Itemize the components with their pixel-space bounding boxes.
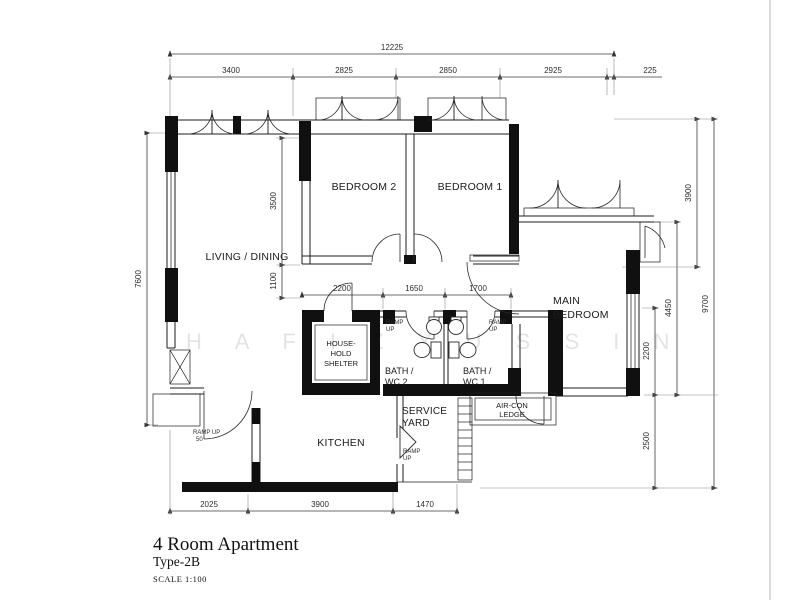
plan-type: Type-2B: [153, 554, 200, 569]
room-label-bath2-2: WC 2: [385, 377, 408, 387]
dim-corridor-1100: 1100: [269, 272, 278, 290]
bedroom2-door-icon: [372, 234, 400, 262]
ramp-label-bath1-2: UP: [489, 327, 497, 333]
room-label-shelter-2: HOLD: [331, 349, 352, 358]
ramp-label-entrance-1: RAMP UP: [193, 430, 220, 436]
dim-right-2500: 2500: [642, 432, 651, 450]
room-label-main-bedroom-2: BEDROOM: [553, 309, 609, 321]
dim-top-2925: 2925: [544, 66, 562, 75]
dim-top-2825: 2825: [335, 66, 353, 75]
room-label-aircon-1: AIR-CON: [496, 401, 528, 410]
ramp-label-service-2: UP: [403, 456, 411, 462]
dim-top-total: 12225: [381, 43, 404, 52]
room-label-bath1-2: WC 1: [463, 377, 486, 387]
ramp-label-service-1: RAMP: [403, 449, 420, 455]
bath2-cistern-icon: [431, 342, 441, 358]
floor-plan-page: H A F I Z Y U S S I N: [0, 0, 800, 600]
dim-bottom-1470: 1470: [416, 500, 434, 509]
ramp-label-bath2-2: UP: [386, 327, 394, 333]
dim-right-3900: 3900: [684, 184, 693, 202]
plan-scale: SCALE 1:100: [153, 574, 207, 584]
room-label-bedroom2: BEDROOM 2: [332, 181, 397, 193]
plan-title: 4 Room Apartment: [153, 534, 299, 555]
main-bedroom-window-icon: [524, 208, 634, 216]
dim-right-9700: 9700: [701, 295, 710, 313]
room-label-bedroom1: BEDROOM 1: [438, 181, 503, 193]
bath2-basin-icon: [427, 320, 442, 335]
room-label-shelter-1: HOUSE-: [326, 339, 356, 348]
windows: [188, 96, 634, 216]
bath1-toilet-icon: [460, 343, 476, 358]
room-label-main-bedroom-1: MAIN: [553, 295, 580, 307]
room-label-bath2-1: BATH /: [385, 366, 414, 376]
dim-bottom-3900: 3900: [311, 500, 329, 509]
dim-corridor-1650: 1650: [405, 284, 423, 293]
ramp-label-bath1-1: RAMP: [489, 320, 506, 326]
bath1-cistern-icon: [449, 342, 459, 358]
bath2-toilet-icon: [414, 343, 430, 358]
bedroom2-window-icon: [316, 98, 400, 120]
dim-left-7600: 7600: [134, 270, 143, 288]
dim-right-4450: 4450: [664, 299, 673, 317]
room-label-kitchen: KITCHEN: [317, 437, 365, 449]
room-label-service-1: SERVICE: [402, 406, 447, 417]
ledge-corner-door-icon: [645, 226, 665, 258]
room-label-living-dining: LIVING / DINING: [206, 251, 289, 263]
living-window-icon: [188, 110, 212, 134]
dim-bottom-2025: 2025: [200, 500, 218, 509]
ramp-label-bath2-1: RAMP: [386, 320, 403, 326]
dim-top-225: 225: [643, 66, 657, 75]
room-label-bath1-1: BATH /: [463, 366, 492, 376]
room-label-service-2: YARD: [402, 418, 430, 429]
dim-top-3400: 3400: [222, 66, 240, 75]
dim-right-2200: 2200: [642, 342, 651, 360]
dim-corridor-1700: 1700: [469, 284, 487, 293]
bath1-basin-icon: [449, 320, 464, 335]
room-label-shelter-3: SHELTER: [324, 359, 359, 368]
room-label-aircon-2: LEDGE: [499, 410, 524, 419]
floor-plan-drawing: H A F I Z Y U S S I N: [0, 0, 800, 600]
dim-bedroom2-3500: 3500: [269, 192, 278, 210]
bedroom1-door-icon: [414, 234, 442, 262]
dim-top-2850: 2850: [439, 66, 457, 75]
ramp-label-entrance-2: 50: [196, 437, 203, 443]
